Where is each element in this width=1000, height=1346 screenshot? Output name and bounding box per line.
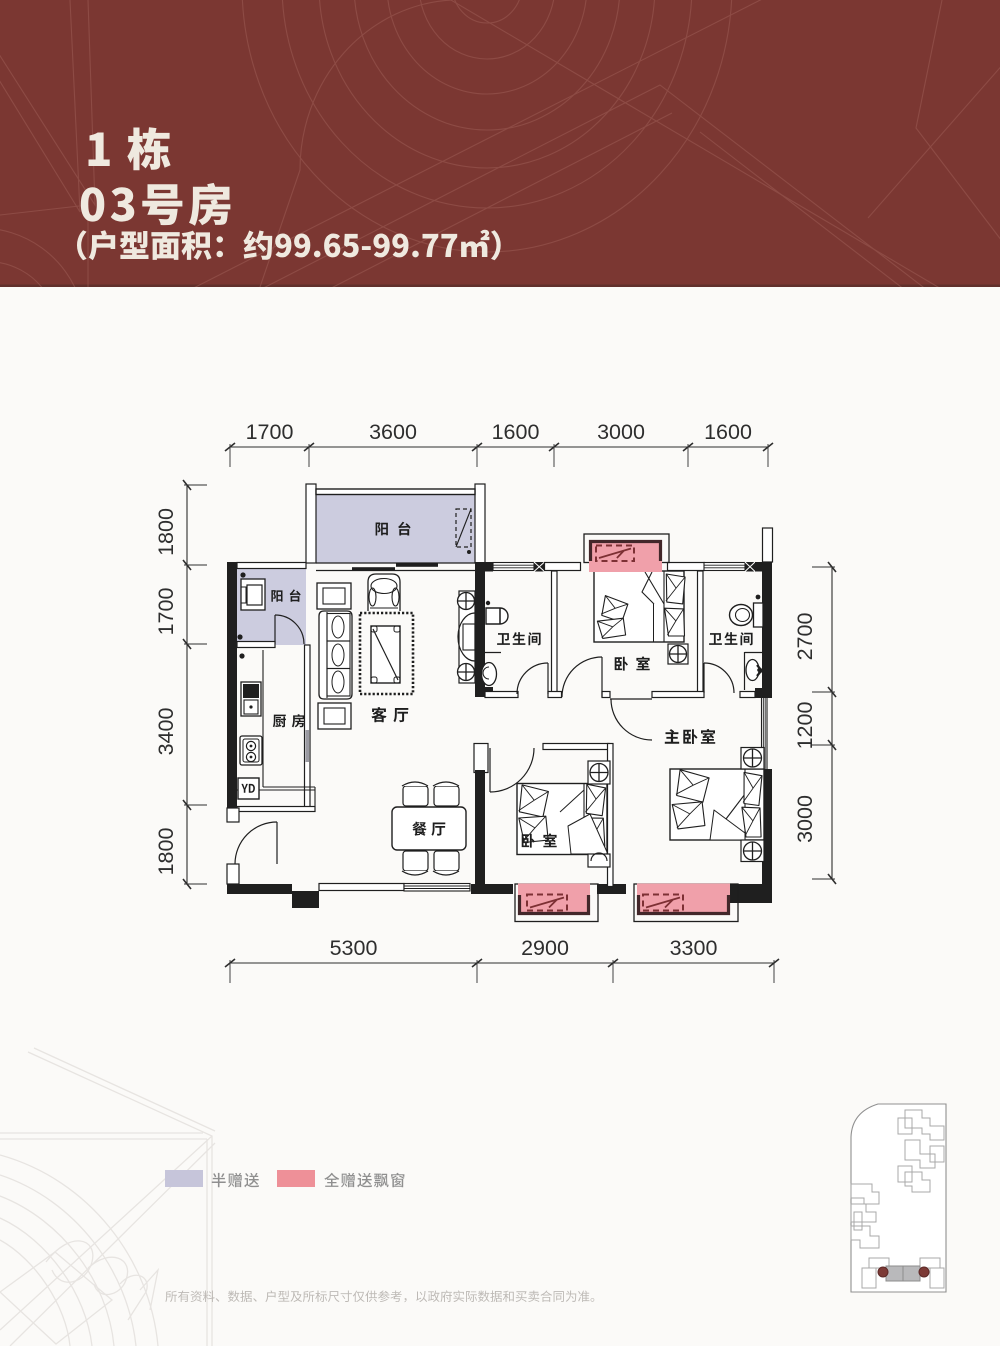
svg-text:2700: 2700 — [793, 613, 817, 661]
svg-text:1600: 1600 — [492, 420, 540, 444]
svg-text:3000: 3000 — [597, 420, 645, 444]
svg-text:1800: 1800 — [154, 828, 178, 876]
svg-text:1600: 1600 — [704, 420, 752, 444]
svg-text:3400: 3400 — [154, 708, 178, 756]
svg-text:1700: 1700 — [246, 420, 294, 444]
svg-text:3300: 3300 — [670, 936, 718, 960]
svg-text:1800: 1800 — [154, 508, 178, 556]
svg-text:2900: 2900 — [521, 936, 569, 960]
svg-text:5300: 5300 — [330, 936, 378, 960]
svg-text:3600: 3600 — [369, 420, 417, 444]
svg-text:3000: 3000 — [793, 795, 817, 843]
svg-text:1700: 1700 — [154, 588, 178, 636]
svg-text:1200: 1200 — [793, 702, 817, 750]
